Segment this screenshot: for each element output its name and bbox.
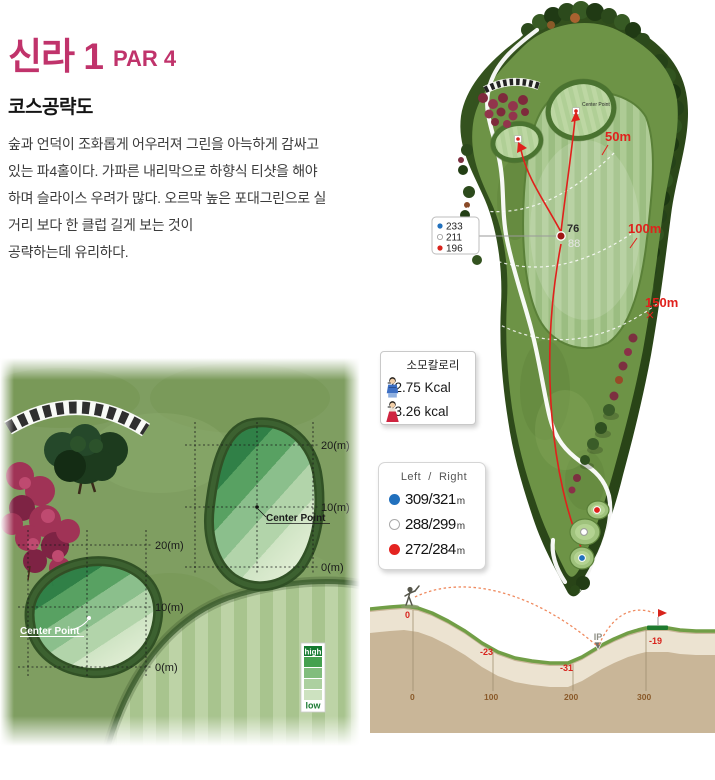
tick-0m: 0(m) [321,562,344,574]
drop-0: 0 [405,610,410,620]
blue-tee-distance: 233 [446,222,463,233]
blue-distance: 309/321 [405,491,456,508]
blue-tee-dot-icon [389,494,400,505]
label-50m: 50m [605,129,631,144]
distance-row-blue: 309/321 m [389,487,479,512]
unit-label: m [457,496,465,507]
red-distance: 272/284 [405,541,456,558]
dist-300: 300 [637,692,651,702]
course-guide-line: 거리 보다 한 클럽 길게 보는 것이 [8,212,388,239]
red-tee-distance: 196 [446,244,463,255]
label-100m: 100m [628,221,661,236]
green-target [647,609,668,630]
unit-label: m [457,546,465,557]
header-separator: / [428,471,432,483]
label-150m: 150m [645,295,678,310]
course-guide: 코스공략도 숲과 언덕이 조화롭게 어우러져 그린을 아늑하게 감싸고 있는 파… [8,92,388,266]
distance-row-white: 288/299 m [389,512,479,537]
distance-box-header: Left / Right [389,471,479,483]
tick-10m: 10(m) [155,602,184,614]
drop-19: -19 [649,636,662,646]
green-detail-panel: 20(m) 10(m) 0(m) Center Point 20(m) 10(m… [0,358,360,746]
course-guide-line: 있는 파4홀이다. 가파른 내리막으로 하향식 티샷을 해야 [8,158,388,185]
elevation-legend: high low [301,643,325,712]
female-hanbok-icon [385,400,400,423]
calorie-box-title: 소모칼로리 [385,357,471,373]
drop-23: -23 [480,647,493,657]
dist-0: 0 [410,692,415,702]
drop-31: -31 [560,663,573,673]
white-tee-dot-icon [389,519,400,530]
edge-fade [0,716,360,746]
red-tee-dot-icon [389,544,400,555]
white-tee-distance: 211 [446,233,462,244]
legend-low-label: low [306,701,322,711]
dist-200: 200 [564,692,578,702]
page: 신라 1PAR 4 코스공략도 숲과 언덕이 조화롭게 어우러져 그린을 아늑하… [0,0,715,780]
green-center-marker [515,136,522,143]
course-guide-line: 공략하는데 유리하다. [8,239,388,266]
white-tee-dot [581,529,588,536]
dist-100: 100 [484,692,498,702]
ip-back-distance: 88 [568,238,580,250]
calorie-row-female: 73.26 kcal [385,399,471,423]
right-green [209,422,319,586]
header-right: Right [439,471,467,483]
course-guide-line: 숲과 언덕이 조화롭게 어우러져 그린을 아늑하게 감싸고 [8,131,388,158]
ip-label: IP [594,632,603,642]
blue-tee-dot [579,555,586,562]
calorie-row-male: 72.75 Kcal [385,375,471,399]
center-point-label: Center Point [582,102,610,108]
center-point-label: Center Point [266,513,326,524]
header-left: Left [401,471,421,483]
legend-high-label: high [305,648,322,657]
earth-cross-section [370,606,715,733]
ip-dot [557,232,565,240]
tee-distance-box: Left / Right 309/321 m 288/299 m 272/284… [378,462,486,570]
tick-20m: 20(m) [155,540,184,552]
elevation-profile: 0 -23 -31 -19 0 100 200 300 IP [370,583,715,760]
hole-name: 신라 1 [8,36,103,77]
edge-fade [0,358,360,380]
red-tee-dot [594,507,601,514]
left-green [30,561,159,673]
course-guide-line: 하며 슬라이스 우려가 많다. 오르막 높은 포대그린으로 실 [8,185,388,212]
unit-label: m [457,521,465,532]
par-label: PAR 4 [113,46,176,71]
distance-row-red: 272/284 m [389,537,479,562]
tick-0m: 0(m) [155,662,178,674]
male-hanbok-icon [385,376,400,399]
center-point-label: Center Point [20,626,80,637]
page-title: 신라 1PAR 4 [8,26,176,80]
golfer-icon [401,586,419,609]
edge-fade [344,358,360,746]
ip-front-distance: 76 [567,223,579,235]
edge-fade [0,358,14,746]
calorie-box: 소모칼로리 72.75 Kcal 73.26 kcal [380,351,476,425]
white-distance: 288/299 [405,516,456,533]
flag-icon [658,609,667,617]
course-guide-heading: 코스공략도 [8,92,388,119]
